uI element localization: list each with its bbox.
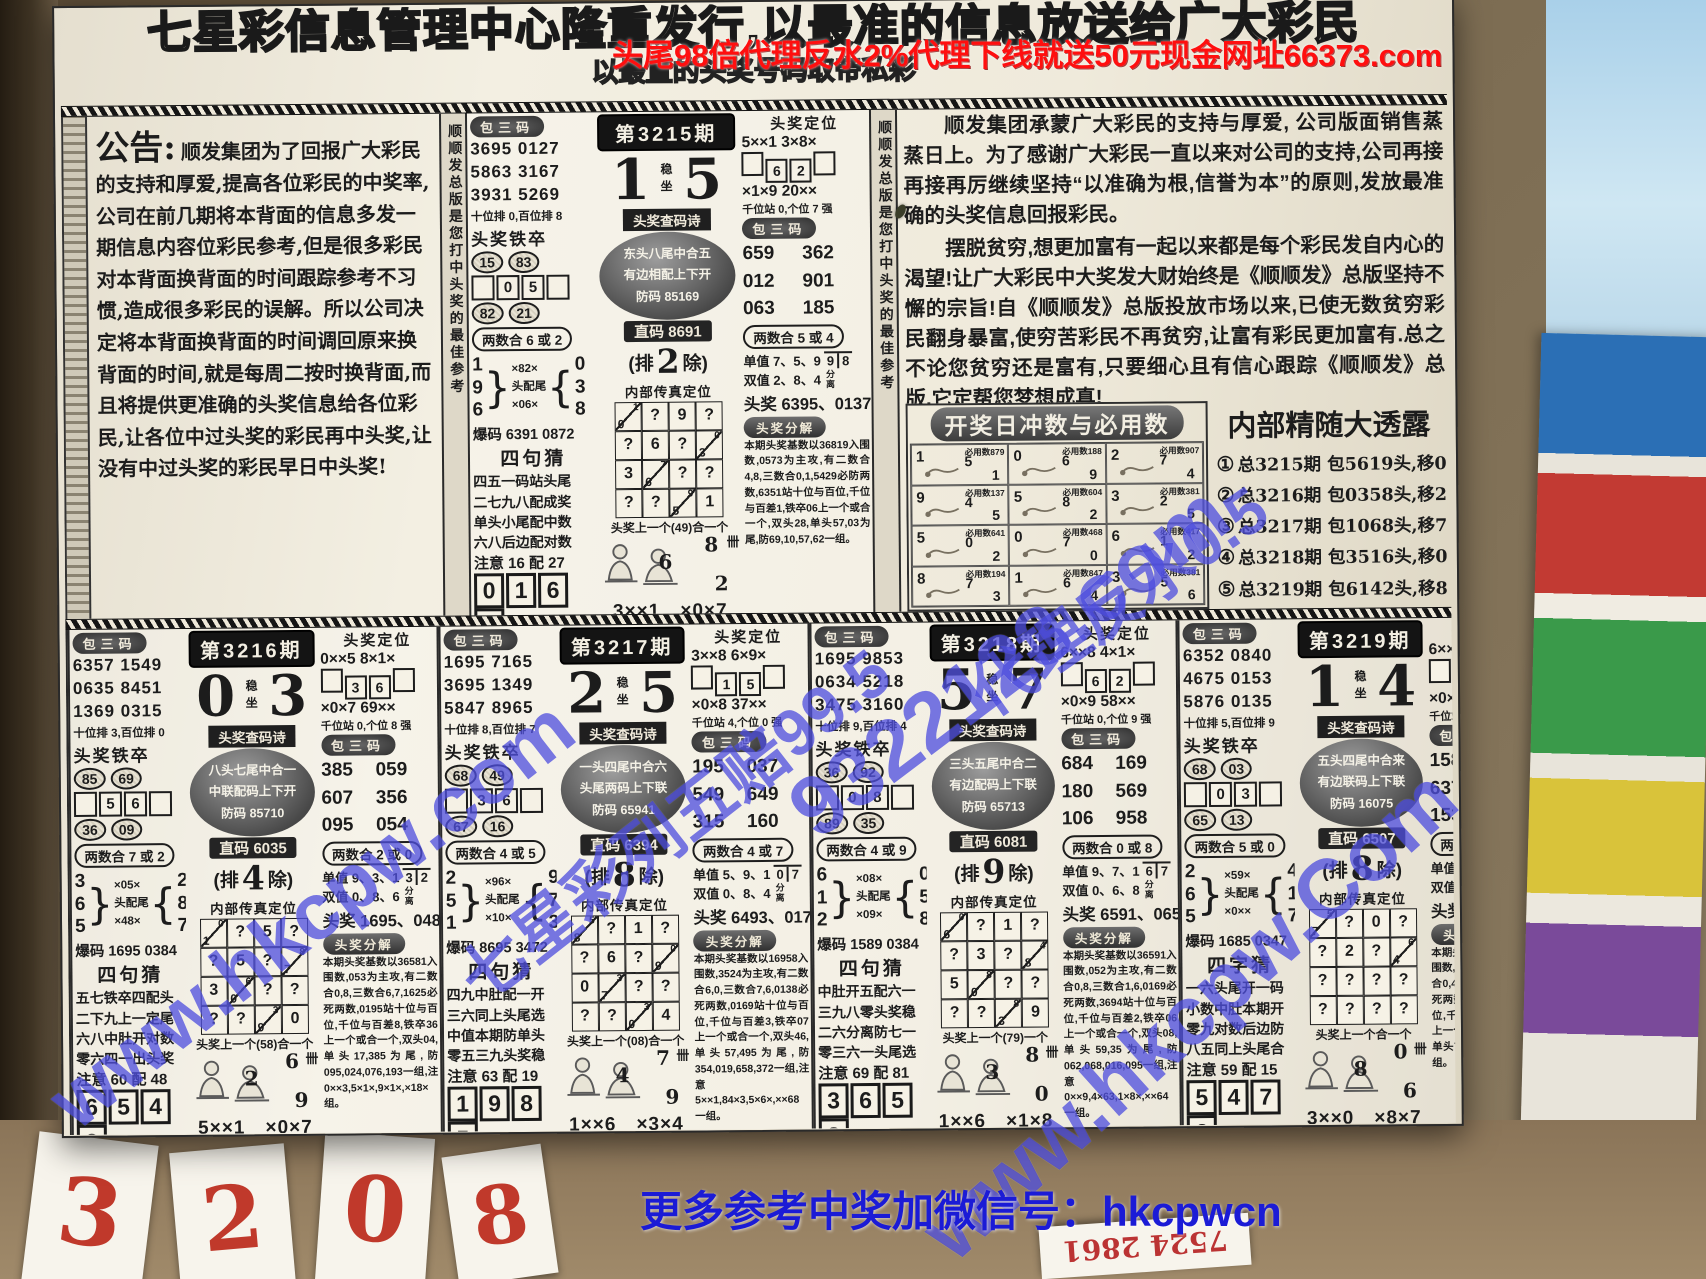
pair-left-digits: 196 [472,354,483,422]
direct-code: 直码 6507 [1318,827,1406,849]
dingwei-box-digit: 3 [344,675,366,699]
announcement-body: 顺发集团为了回报广大彩民的支持和厚爱,提高各位彩民的中奖率,公司在前几期将本背面… [95,138,431,481]
grid-cell: ? [615,489,642,518]
panel-left-column: 包三码 6352 0840 4675 0153 5876 0135 十位排 5,… [1180,619,1297,1125]
grid-cell: ? [1309,938,1336,967]
grid-cell: ? [995,969,1022,998]
monk-number: 0 [1394,1040,1408,1064]
single-value-row: 单值 1、9、3 59 [1430,857,1455,877]
monks-illustration: 2 6 9 卌 [190,1053,320,1112]
poem-line: 防码 65713 [933,796,1053,818]
value-fraction: 67 [1142,861,1171,878]
poem-line: 防码 85710 [192,802,313,824]
bao3-number: 3695 0127 [470,137,591,161]
prize-breakdown-text: 本期头奖基数以16852入围数,0347为主攻,有二数合0,4,三数合5,7,1… [1431,945,1456,1072]
riddle-line: 六八后边配对数 [474,531,595,552]
panel-left-column: 包三码 1695 7165 3695 1349 5847 8965 十位排 8,… [440,626,558,1132]
tiezu-number: 92 [852,761,884,783]
grid-cell: ? [571,944,598,973]
grid-cell: 0 [1362,908,1389,937]
dingwei-boxes: 15 [691,665,806,697]
monk-number: 0 [1035,1081,1049,1105]
grid-cell: 03 [696,430,723,459]
result-digit-boxes: 3658 [818,1083,928,1129]
pair-left-digits: 612 [816,864,827,932]
position-grid: 57?0? ?2?64 ???? ???? [1296,908,1430,1025]
riddle-line: 零六四一出头奖 [76,1048,186,1069]
dingwei-line: ×1×9 20×× [742,182,868,201]
stable-digit-right: 5 [683,151,722,207]
poem-badge: 头奖查码诗 [623,208,711,231]
tiezu-box-digit: 0 [496,275,519,300]
zodiac-animal-icon [1116,542,1160,560]
stable-digit-right: 5 [639,665,678,721]
background-ticket: 0 [315,1131,435,1279]
monks-illustration: 4 7 9 卌 [561,1049,691,1108]
monk-number: 3 [985,1059,999,1083]
prize-breakdown-text: 本期头奖基数以16958入围数,3524为主攻,有二数合6,0,三数合7,6,0… [694,951,810,1125]
tiezu-number: 69 [110,767,142,789]
internal-fax-label: 内部传真定位 [187,897,321,918]
bao3-badge-icon: 包三码 [321,734,395,756]
two-number-sum-right: 两数合 2 或 0 [322,841,422,866]
grid-cell: 39 [254,1005,281,1034]
prize-breakdown-badge: 头奖分解 [1431,923,1456,945]
value-fraction: 07 [773,864,802,881]
grid-cell: 5 [254,918,281,947]
zodiac-number: 6 [1188,586,1196,602]
poem-lantern: 一头四尾中合六 头尾两码上下联 防码 65941 [561,745,686,834]
bao3-number: 1369 0315 [73,700,183,724]
grid-cell: ? [625,973,652,1002]
dingwei-note: 千位站 4,个位 0 强 [692,714,807,731]
tiezu-box-digit: 8 [866,785,889,810]
riddle-line: 中肚开五配六一 [818,981,927,1002]
ticket-number: 0 [340,1155,410,1265]
tiezu-number: 35 [853,812,885,834]
head-tail-pairing: 251 } ×96×头配尾×10× { 973 [446,867,556,936]
tiezu-box-digit: 6 [124,791,147,816]
dingwei-line: ×0×9 58×× [1061,692,1175,711]
result-digit-boxes: 0163 [474,573,595,616]
item-text: 总3218期 包3516头,移03中奖。 [1238,547,1447,569]
grid-cell: ? [940,941,967,970]
explosion-code: 爆码 1685 0347 [1185,930,1294,952]
lottery-panel: 包三码 6357 1549 0635 8451 1369 0315 十位排 3,… [69,627,440,1135]
brace-glyph: { [1260,873,1287,915]
dingwei-box-digit: 1 [715,672,737,696]
tiezu-oval-row: 1583 [471,249,592,274]
first-prize-numbers: 头奖 1695、0487 [322,906,437,931]
grid-cell: 9 [668,401,695,430]
tiezu-number: 09 [111,818,143,840]
item-text: 总3216期 包0358头,移27中奖。 [1238,485,1448,507]
riddle-line: 二七九八配成奖 [473,491,594,512]
reveal-title: 内部精随大透露 [1216,401,1442,445]
prize-breakdown-badge: 头奖分解 [1063,926,1145,948]
tiezu-number: 68 [445,764,477,786]
right-column: 顺发集团承蒙广大彩民的支持与厚爱, 公司版面销售蒸蒸日上。为了感谢广大彩民一直以… [897,105,1451,612]
stable-digits: 1 稳坐 5 [593,151,740,208]
grid-cell: ? [652,972,679,1001]
panel-right-column: 头奖定位 6××8 4×1× 62 ×0×9 58×× 千位站 0,个位 9 强… [1059,620,1180,1126]
riddle-note: 注意 69 配 81 [818,1062,927,1084]
bao3-badge-icon: 包三码 [443,629,517,651]
tiezu-oval-row: 3692 [816,759,925,784]
zodiac-cell: 9 4 5 必用数137 [911,484,1009,525]
monk-number: 8 [1025,1043,1039,1067]
item-text: 总3215期 包5619头,移04中奖。 [1237,453,1447,475]
stable-label: 稳坐 [243,679,260,713]
monks-illustration: 3 8 0 卌 [931,1046,1060,1105]
lottery-panel: 包三码 3695 0127 5863 3167 3931 5269 十位排 0,… [467,110,873,615]
internal-fax-label: 内部传真定位 [558,893,692,914]
zodiac-number: 4 [1187,465,1195,481]
dingwei-line: ×0×8 37×× [692,696,807,715]
tiezu-oval-row: 8569 [74,766,184,791]
bao3-right-table: 195037 549649 315160 [692,753,801,837]
grid-cell: ? [200,1005,227,1034]
bottom-section: 顺顺发总版是您打中头奖的最佳参考 包三码 6357 1549 0635 8451… [65,618,1455,1135]
monk-number: 4 [615,1063,629,1087]
must-use-number: 必用数468 [1063,526,1103,538]
poem-line: 五头四尾中合来 [1301,750,1421,772]
double-value-row: 双值 0、8、4 分离 [693,882,808,903]
bao3-number: 5863 3167 [470,160,591,184]
background-magazine-sky [1546,0,1706,340]
dingwei-boxes: 62 [1060,661,1174,693]
dingwei-title: 头奖定位 [691,626,806,648]
grid-cell: 5 [941,970,968,999]
grid-cell: ? [967,912,994,941]
monk-number: 2 [245,1066,259,1090]
zodiac-animal-icon [1018,543,1062,561]
pair-left-digits: 365 [75,871,86,939]
grid-cell: 01 [200,918,227,947]
pair-middle-labels: ×82×头配尾×06× [511,361,546,415]
zodiac-number: 5 [992,507,1000,523]
grid-cell: ? [1390,995,1417,1024]
tiezu-number: 85 [74,767,106,789]
zodiac-number: 3 [993,588,1001,604]
brace-glyph: } [457,880,484,922]
exclude-row-label: (排8除) [1296,848,1429,888]
dingwei-line: 6××0 5×4× [1429,640,1456,659]
bao3-number: 3695 1349 [444,674,554,698]
tally-mark: 卌 [1414,1038,1427,1057]
stable-digits: 2 稳坐 5 [556,665,690,722]
dingwei-box-digit: 6 [766,159,788,183]
brace-glyph: } [484,367,511,409]
value-fraction: 32 [402,867,431,884]
dingwei-title: 头奖定位 [1060,622,1174,644]
pair-right-digits: 038 [575,353,586,421]
tally-mark: 卌 [676,1045,689,1064]
bottom-pattern: 3××1 ×0×7 [597,595,744,615]
zodiac-cell: 0 6 9 必用数188 [1008,443,1106,484]
grid-cell: 60 [227,976,254,1005]
two-number-sum-right: 两数合 5 或 4 [743,324,843,349]
pair-middle-labels: ×59×头配尾×0×× [1224,868,1259,922]
zodiac-number: 2 [992,547,1000,563]
top-ad-banner: 头尾98倍代理反水2%代理下线就送50元现金网址66373.com [612,30,1442,75]
grid-cell: 3 [615,460,642,489]
poem-lantern: 东头八尾中合五 有边相配上下开 防码 85169 [599,231,736,320]
poem-lantern: 八头七尾中合一 中联配码上下开 防码 85710 [190,748,315,837]
zodiac-grid: 1 5 1 必用数879 [910,441,1206,608]
stable-digits: 0 稳坐 3 [185,668,319,725]
digit-position-note: 十位排 9,百位排 4 [815,717,924,734]
dingwei-note: 千位站 3,个位 1 强 [1429,707,1456,724]
must-use-number: 必用数641 [965,527,1005,539]
dingwei-note: 千位站 0,个位 9 强 [1061,710,1175,727]
zodiac-animal-icon [1019,583,1063,601]
grid-cell: 80 [968,970,995,999]
position-grid: 01?5? ?5?87 360?? ??390 [187,918,322,1035]
prize-breakdown-badge: 头奖分解 [694,929,776,951]
tiezu-number: 36 [74,818,106,840]
must-use-number: 必用数604 [1062,485,1102,497]
announcement: 公告: 顺发集团为了回报广大彩民的支持和厚爱,提高各位彩民的中奖率,公司在前几期… [87,114,443,619]
monk-number: 7 [656,1046,670,1070]
empty-box [1429,659,1451,683]
stable-digits: 1 稳坐 4 [1294,658,1427,715]
grid-cell: ? [1336,995,1363,1024]
grid-cell: ? [615,431,642,460]
exclude-row-label: (排4除) [186,858,320,898]
must-use-number: 必用数907 [1160,444,1200,456]
tiezu-box-digit: 6 [495,788,518,813]
reveal-item: ①总3215期 包5619头,移04中奖。 [1216,447,1442,480]
result-digit-boxes: 5472 [1187,1080,1297,1126]
digit-position-note: 十位排 0,百位排 8 [471,207,592,224]
grid-cell: ? [281,976,308,1005]
poem-line: 八头七尾中合一 [192,760,313,782]
grid-cell: 87 [281,947,308,976]
reveal-list: ①总3215期 包5619头,移04中奖。 ②总3216期 包0358头,移27… [1216,447,1443,605]
grid-cell: 1 [696,488,723,517]
grid-cell: ? [641,402,668,431]
tiezu-box-digit: 0 [1209,782,1232,807]
empty-box [1259,781,1282,806]
grid-cell: ? [1022,969,1049,998]
grid-note: 头奖上一个合一个 [1297,1025,1430,1043]
dingwei-title: 头奖定位 [741,112,867,134]
poem-line: 头尾两码上下联 [563,778,684,800]
single-value-row: 单值 7、5、9 98 [743,350,869,370]
zodiac-animal-icon [1017,462,1061,480]
first-prize-numbers: 头奖 6591、0659 [1063,900,1177,925]
dingwei-line: 5××1 3×8× [742,133,868,152]
panel-slot-3219: 包三码 6352 0840 4675 0153 5876 0135 十位排 5,… [1180,618,1456,1125]
grid-cell: ? [1309,996,1336,1025]
position-grid: 10?9? ?6?03 376?? ??951 [595,401,743,518]
poem-line: 中联配码上下开 [192,781,313,803]
dingwei-box-digit: 6 [368,675,390,699]
zodiac-cell: 3 2 5 必用数381 [1106,483,1204,524]
poem-badge: 头奖查码诗 [1317,715,1405,738]
riddle-line: 二六分离防七一 [818,1021,927,1042]
two-number-sum-left: 两数合 4 或 9 [816,836,916,861]
bao3-badge-icon: 包三码 [692,731,766,753]
poem-line: 一头四尾中合六 [563,757,684,779]
monk-number: 9 [294,1088,308,1112]
zodiac-number: 9 [1089,466,1097,482]
first-prize-numbers: 头奖 6493、0174 [693,903,808,928]
poem-line: 防码 85169 [601,286,733,308]
double-value-row: 双值 0、6、8 分离 [1062,879,1176,900]
riddle-note: 注意 59 配 15 [1186,1059,1295,1081]
grid-cell: ? [1389,908,1416,937]
pair-middle-labels: ×05×头配尾×48× [114,878,149,932]
panel-slot-3216: 包三码 6357 1549 0635 8451 1369 0315 十位排 3,… [69,627,440,1135]
tiezu-number: 67 [445,815,477,837]
tiezu-title: 头奖铁卒 [444,738,554,764]
dingwei-note: 千位站 0,个位 8 强 [321,717,436,734]
ticket-number: 8 [466,1165,534,1266]
panel-left-column: 包三码 6357 1549 0635 8451 1369 0315 十位排 3,… [69,629,187,1135]
tiezu-title: 头奖铁卒 [815,734,924,760]
two-number-sum-right: 两数合 5 或 1 [1430,831,1456,856]
tiezu-title: 头奖铁卒 [1184,731,1293,757]
empty-box [816,785,839,810]
tiezu-box-digit: 0 [841,785,864,810]
poem-badge: 头奖查码诗 [208,725,296,748]
riddle-line: 四五一码站头尾 [473,471,594,492]
digit-position-note: 十位排 3,百位排 0 [73,724,183,741]
tiezu-box-row: 56 [74,791,184,817]
dingwei-title: 头奖定位 [320,629,435,651]
grid-cell: 1 [625,915,652,944]
double-value-row: 双值 2、8、4 分离 [744,369,870,390]
four-line-riddle-title: 四句猜 [473,444,594,472]
dingwei-line: ×0×1 25×× [1429,689,1456,708]
direct-code: 直码 8691 [624,320,712,342]
grid-cell: ? [642,488,669,517]
grid-cell: 57 [1308,909,1335,938]
monk-number: 6 [1403,1078,1417,1102]
position-grid: 06?1? ?3?48 580?? ??839 [928,911,1062,1028]
bao3-right-table: 684169 180569 106958 [1061,749,1170,833]
monk-number: 6 [285,1049,299,1073]
tally-mark: 卌 [305,1048,318,1067]
head-tail-pairing: 265 } ×59×头配尾×0×× { 417 [1185,860,1295,929]
tiezu-box-row: 03 [1184,781,1293,807]
sidebar-strip: 顺顺发总版是您打中头奖的最佳参考 [869,110,901,612]
riddle-line: 零九对数后边防 [1186,1018,1295,1039]
tiezu-box-row: 08 [816,784,925,810]
empty-box [445,788,468,813]
grid-cell: 76 [642,460,669,489]
empty-box [1060,662,1082,686]
tiezu-box-digit: 5 [521,275,544,300]
dingwei-box-digit: 2 [790,158,812,182]
grid-note: 头奖上一个(08)合一个 [559,1031,693,1049]
lower-right-section: 开奖日冲数与必用数 1 5 1 必用数879 [906,399,1448,612]
riddle-line: 零三六一头尾选 [818,1042,927,1063]
direct-code: 直码 6394 [580,834,668,856]
grid-cell: ? [200,947,227,976]
background-ticket: 3 [21,1131,158,1279]
grid-cell: ? [968,999,995,1028]
separate-label: 分离 [403,886,416,906]
item-circled-number: ⑤ [1217,576,1235,600]
page-curl-shadow [0,0,58,1279]
grid-cell: 37 [598,973,625,1002]
bottom-contact-banner: 更多参考中奖加微信号：hkcpwcn [640,1178,1282,1239]
bao3-number: 6352 0840 [1183,644,1292,668]
poem-line: 东头八尾中合五 [601,243,733,265]
item-circled-number: ② [1217,483,1235,507]
monk-number: 6 [658,549,672,573]
zodiac-section: 开奖日冲数与必用数 1 5 1 必用数879 [906,401,1210,612]
panel-middle-column: 第3217期 2 稳坐 5 头奖查码诗 一头四尾中合六 头尾两码上下联 防码 6… [554,625,694,1131]
grid-cell: ? [1363,995,1390,1024]
poem-badge: 头奖查码诗 [949,719,1037,742]
panel-slot-3215: 包三码 3695 0127 5863 3167 3931 5269 十位排 0,… [467,110,873,615]
grid-cell: ? [652,914,679,943]
background-ticket: 8 [441,1144,558,1279]
riddle-note: 注意 63 配 19 [447,1065,557,1087]
poem-lantern: 五头四尾中合来 有边联码上下联 防码 16075 [1299,738,1423,827]
four-line-riddle-title: 四字猜 [1186,951,1295,979]
grid-cell: 4 [652,1001,679,1030]
tiezu-number: 21 [508,302,540,324]
lottery-panel: 包三码 1695 9853 0634 5218 3475 3160 十位排 9,… [811,620,1180,1128]
zodiac-cell: 1 5 1 必用数879 [911,444,1009,485]
zodiac-cell: 5 0 2 必用数641 [912,525,1010,566]
riddle-note: 注意 16 配 27 [474,552,595,574]
bao3-badge-icon: 包三码 [1183,623,1257,645]
empty-box [1184,782,1207,807]
brace-glyph: } [828,877,855,919]
monks-drawing-icon [194,1057,280,1106]
stable-digit-left: 5 [937,662,976,718]
reveal-item: ⑤总3219期 包6142头,移89中奖。 [1217,572,1443,605]
bottom-pattern: 1××6 ×1×8 [930,1105,1063,1127]
tiezu-number: 68 [1184,758,1216,780]
brace-glyph: { [891,877,918,919]
grid-cell: ? [1309,967,1336,996]
panel-right-column: 头奖定位 0××5 8×1× 36 ×0×7 69×× 千位站 0,个位 8 强… [319,627,441,1133]
stable-digit-left: 2 [567,665,606,721]
empty-box [742,152,764,176]
lottery-panel: 包三码 6352 0840 4675 0153 5876 0135 十位排 5,… [1180,618,1456,1125]
tiezu-number: 82 [472,302,504,324]
riddle-line: 单头小尾配中数 [473,511,594,532]
exclude-row-label: (排9除) [927,851,1060,891]
monk-number: 9 [665,1085,679,1109]
two-number-sum-left: 两数合 4 或 5 [445,840,545,865]
grid-cell: ? [1336,966,1363,995]
single-value-row: 单值 9、7、1 67 [1062,860,1176,880]
explosion-code: 爆码 1695 0384 [75,939,185,961]
grid-cell: ? [1335,908,1362,937]
bao3-number: 0635 8451 [73,677,183,701]
grid-cell: 0 [571,973,598,1002]
zodiac-animal-icon [1115,501,1159,519]
grid-cell: ? [669,459,696,488]
poem-line: 有边配码上下联 [933,775,1053,797]
lottery-panel: 包三码 1695 7165 3695 1349 5847 8965 十位排 8,… [440,624,811,1132]
tiezu-number: 36 [816,761,848,783]
two-number-sum-right: 两数合 0 或 8 [1062,834,1162,859]
panel-middle-column: 第3218期 5 稳坐 7 头奖查码诗 三头五尾中合二 有边配码上下联 防码 6… [924,621,1063,1127]
bao3-right-table: 659362 012901 063185 [742,239,862,323]
tiezu-number: 49 [481,764,513,786]
item-text: 总3217期 包1068头,移71中奖。 [1238,516,1447,538]
grid-cell: 30 [625,1002,652,1031]
